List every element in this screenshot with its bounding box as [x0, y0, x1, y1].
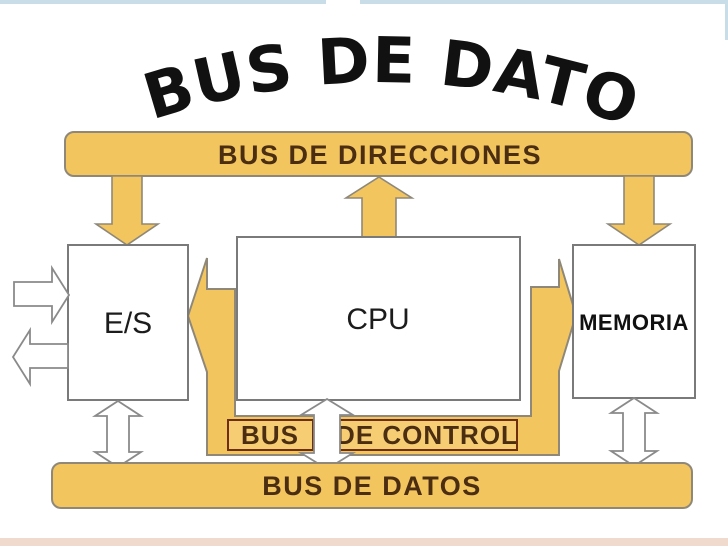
external-output-arrow-icon	[13, 330, 68, 384]
control-bus-label-left: BUS	[241, 420, 299, 450]
address-bus-to-memory-arrow-icon	[608, 176, 670, 245]
diagram-title: BUS DE DATOS	[0, 0, 648, 141]
io-label: E/S	[104, 307, 152, 340]
memory-data-bus-arrow-icon	[611, 398, 657, 466]
bottom-border-strip	[0, 538, 728, 546]
address-bus-label: BUS DE DIRECCIONES	[218, 140, 542, 170]
control-bus-label-right: DE CONTROL	[336, 420, 518, 450]
cpu-label: CPU	[346, 303, 409, 336]
address-bus-to-io-arrow-icon	[96, 176, 158, 245]
memory-label: MEMORIA	[579, 310, 689, 335]
external-input-arrow-icon	[14, 268, 69, 322]
io-data-bus-arrow-icon	[95, 401, 141, 467]
diagram-canvas: BUS DE DATOS BUS DE DIRECCIONES E/S CPU …	[0, 0, 728, 546]
diagram-title-text: BUS DE DATOS	[0, 0, 648, 141]
top-border-line-right	[360, 0, 728, 4]
cpu-to-address-bus-arrow-icon	[346, 177, 412, 237]
top-border-line-left	[0, 0, 326, 4]
bus-architecture-diagram: BUS DE DATOS BUS DE DIRECCIONES E/S CPU …	[0, 0, 728, 546]
data-bus-label: BUS DE DATOS	[262, 471, 482, 501]
